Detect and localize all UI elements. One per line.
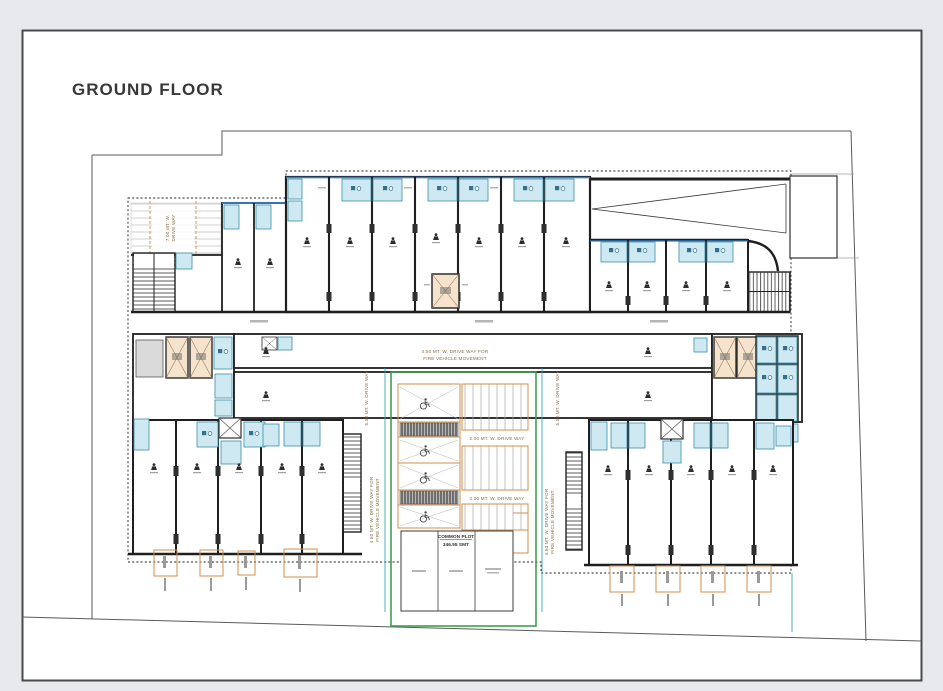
- ramp-side-box: [790, 176, 837, 258]
- toilet-room: [278, 337, 292, 350]
- toilet-room: [134, 419, 149, 450]
- toilet-room: [288, 201, 302, 221]
- driveway-2m-label: 2.00 MT. W. DRIVE WAY: [470, 436, 525, 441]
- driveway-north-west: 7.00 MT. W. DRIVE WAY: [131, 201, 222, 255]
- shops-north-west: [222, 203, 286, 312]
- fire-lane-label-line1: 4.50 MT. W. DRIVE WAY FOR: [544, 488, 549, 555]
- toilet-room: [263, 424, 279, 446]
- toilet-room: [288, 179, 302, 199]
- speed-bump: [400, 423, 458, 436]
- fire-lane-label-line2: FIRE VEHICLE MOVEMENT: [375, 478, 380, 541]
- fire-lane-label-line2: FIRE VEHICLE MOVEMENT: [550, 490, 555, 553]
- common-plot-name: COMMON PLOT: [438, 534, 475, 540]
- toilet-room: [712, 423, 728, 448]
- toilet-room: [663, 441, 681, 463]
- toilet-room: [756, 423, 774, 449]
- driveway-55m-label: 5.50 MT. W. DRIVE WAY: [364, 371, 369, 426]
- shops-north-row: [286, 177, 590, 312]
- service-room: [136, 340, 163, 377]
- duct-x-icon: [661, 419, 683, 439]
- toilet-room: [215, 400, 232, 416]
- toilet-room: [694, 423, 710, 448]
- toilet-room: [197, 422, 218, 447]
- fire-lane-label-line2: FIRE VEHICLE MOVEMENT: [423, 356, 486, 361]
- toilet-room: [629, 423, 645, 448]
- lift-x-icon: [714, 337, 736, 378]
- toilet-room: [694, 338, 707, 352]
- page-title: GROUND FLOOR: [72, 80, 224, 99]
- shops-south-east: [584, 419, 798, 565]
- fire-lane-label-line1: 4.50 MT. W. DRIVE WAY FOR: [422, 349, 489, 354]
- toilet-block-east: [756, 336, 798, 422]
- duct-x-icon: [219, 418, 241, 438]
- speed-bump: [400, 491, 458, 504]
- common-plot-area: 346.55 SMT: [443, 542, 469, 548]
- parking-stalls: 2.00 MT. W. DRIVE WAY 2.00 MT. W. DRIVE …: [462, 384, 528, 530]
- core-west: [133, 334, 234, 420]
- lift-x-icon: [190, 337, 212, 378]
- driveway-55m-label: 5.50 MT. W. DRIVE WAY: [555, 371, 560, 426]
- duct-x-icon: [262, 337, 277, 350]
- driveway-7m-label-line1: 7.00 MT. W.: [165, 215, 170, 241]
- driveway-7m-label-line2: DRIVE WAY: [171, 214, 176, 241]
- toilet-room: [224, 205, 239, 229]
- fire-lane-label-line1: 4.50 MT. W. DRIVE WAY FOR: [369, 476, 374, 543]
- toilet-room: [244, 422, 265, 447]
- common-plot-room: COMMON PLOT 346.55 SMT: [401, 531, 513, 611]
- lift-x-icon: [166, 337, 188, 378]
- toilet-room: [256, 205, 271, 229]
- shops-south-west: [128, 418, 362, 554]
- toilet-room: [221, 441, 241, 464]
- driveway-2m-label: 2.00 MT. W. DRIVE WAY: [470, 496, 525, 501]
- toilet-room: [611, 423, 627, 448]
- toilet-room: [776, 426, 791, 446]
- drawing-sheet-viewport: GROUND FLOOR 7.00 MT. W. DRIVE WAY: [0, 0, 943, 691]
- stairs-south-east: [566, 452, 582, 550]
- toilet-room: [284, 422, 301, 446]
- toilet-room: [591, 422, 607, 450]
- lift-x-icon: [432, 274, 459, 308]
- toilet-room: [215, 374, 232, 398]
- floor-plan-canvas: GROUND FLOOR 7.00 MT. W. DRIVE WAY: [0, 0, 943, 691]
- stairs-south-west: [343, 434, 361, 532]
- stairs-north-east: [748, 272, 790, 312]
- toilet-room: [214, 337, 232, 369]
- toilet-room: [176, 253, 192, 269]
- toilet-room: [303, 422, 320, 446]
- shops-north-east-row: [590, 240, 748, 312]
